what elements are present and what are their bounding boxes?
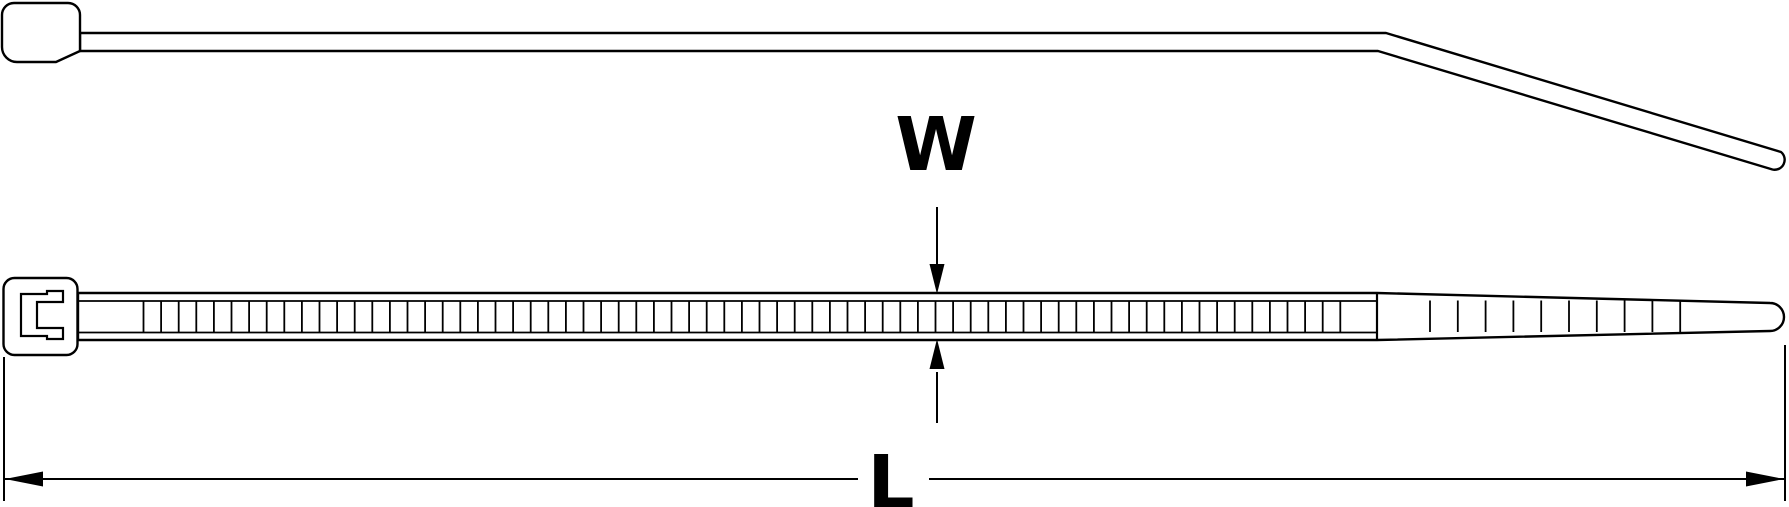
length-dimension: L <box>4 345 1785 507</box>
width-arrow-upper-head <box>930 264 945 294</box>
side-view <box>2 3 1785 170</box>
diagram-svg: W L <box>0 0 1789 507</box>
length-arrow-right <box>1746 472 1784 487</box>
top-view-head <box>4 278 78 355</box>
top-view <box>4 278 1785 355</box>
width-dimension: W <box>895 102 977 423</box>
width-dimension-label: W <box>895 102 977 188</box>
cable-tie-dimension-diagram: W L <box>0 0 1789 507</box>
width-arrow-lower-head <box>930 339 945 369</box>
side-view-head <box>2 3 80 62</box>
length-arrow-left <box>5 472 43 487</box>
length-dimension-label: L <box>867 440 914 507</box>
